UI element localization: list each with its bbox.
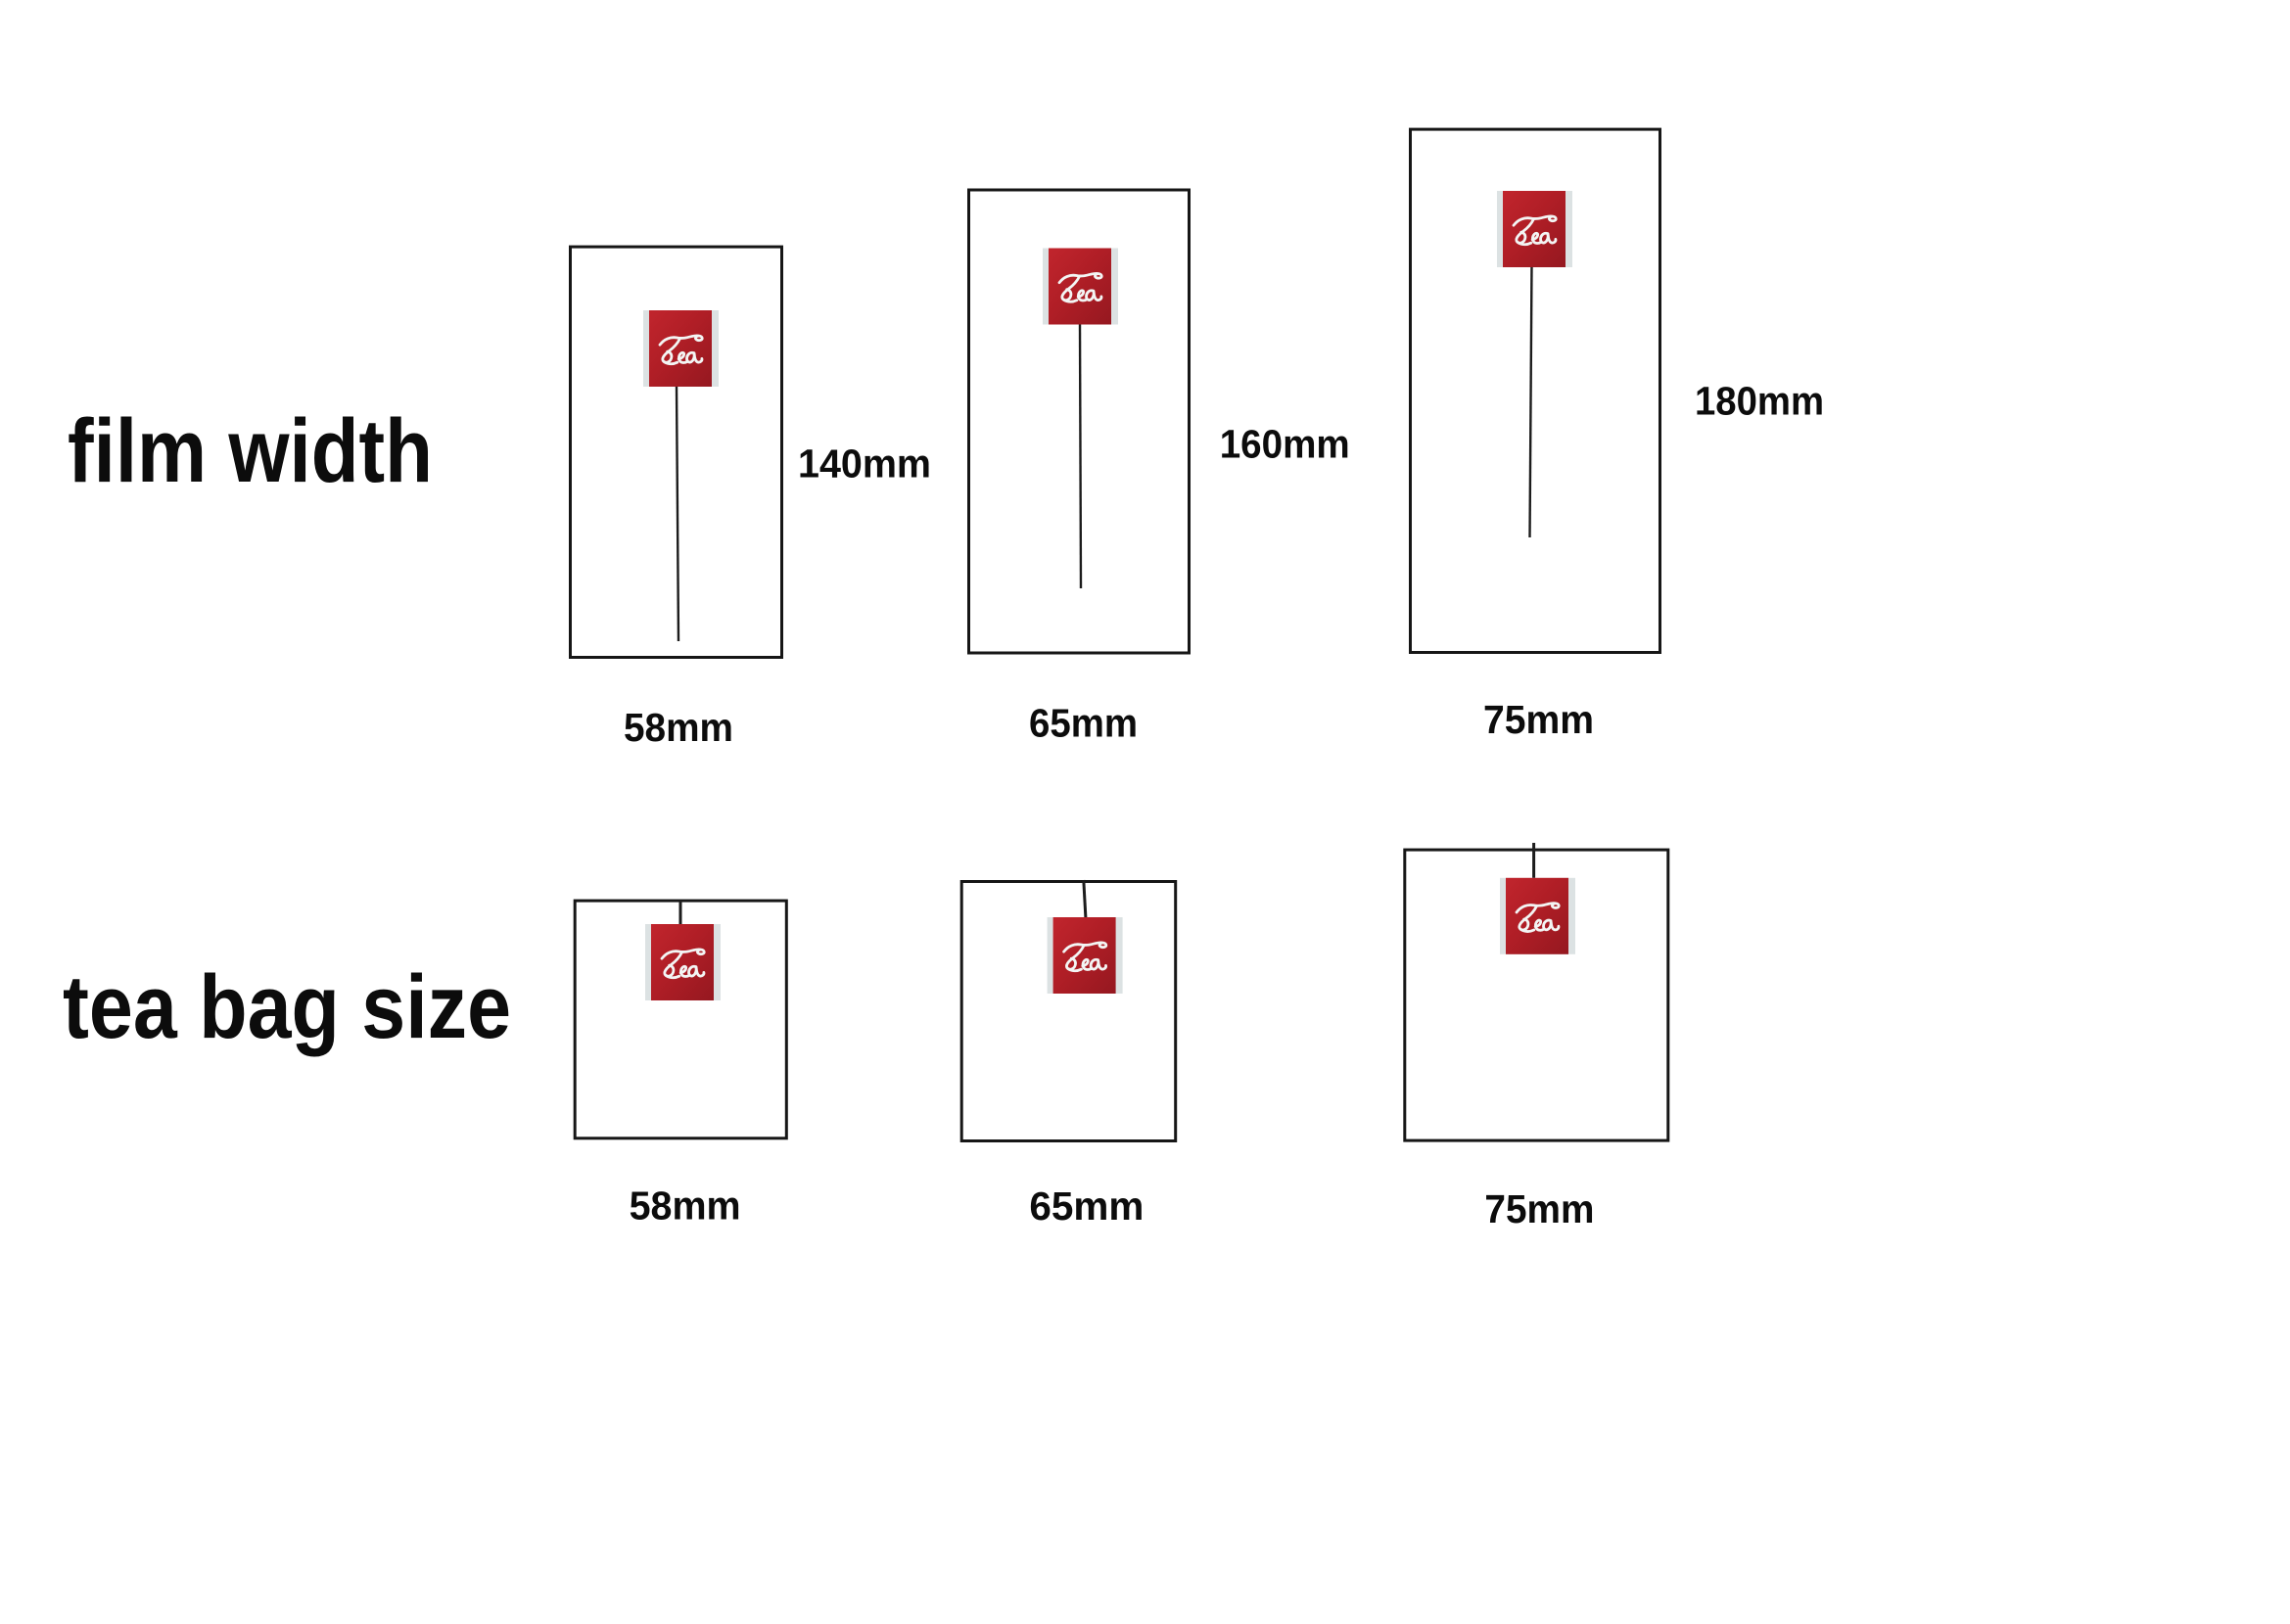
svg-text:75mm: 75mm — [1483, 697, 1594, 742]
svg-text:75mm: 75mm — [1484, 1186, 1594, 1231]
svg-text:140mm: 140mm — [798, 441, 931, 487]
svg-text:160mm: 160mm — [1220, 422, 1350, 467]
svg-text:65mm: 65mm — [1029, 701, 1138, 746]
svg-text:tea bag size: tea bag size — [63, 957, 511, 1057]
svg-text:film width: film width — [68, 401, 433, 501]
svg-text:58mm: 58mm — [630, 1183, 741, 1228]
svg-text:180mm: 180mm — [1695, 378, 1824, 423]
svg-text:65mm: 65mm — [1029, 1183, 1144, 1229]
svg-text:58mm: 58mm — [624, 705, 733, 750]
